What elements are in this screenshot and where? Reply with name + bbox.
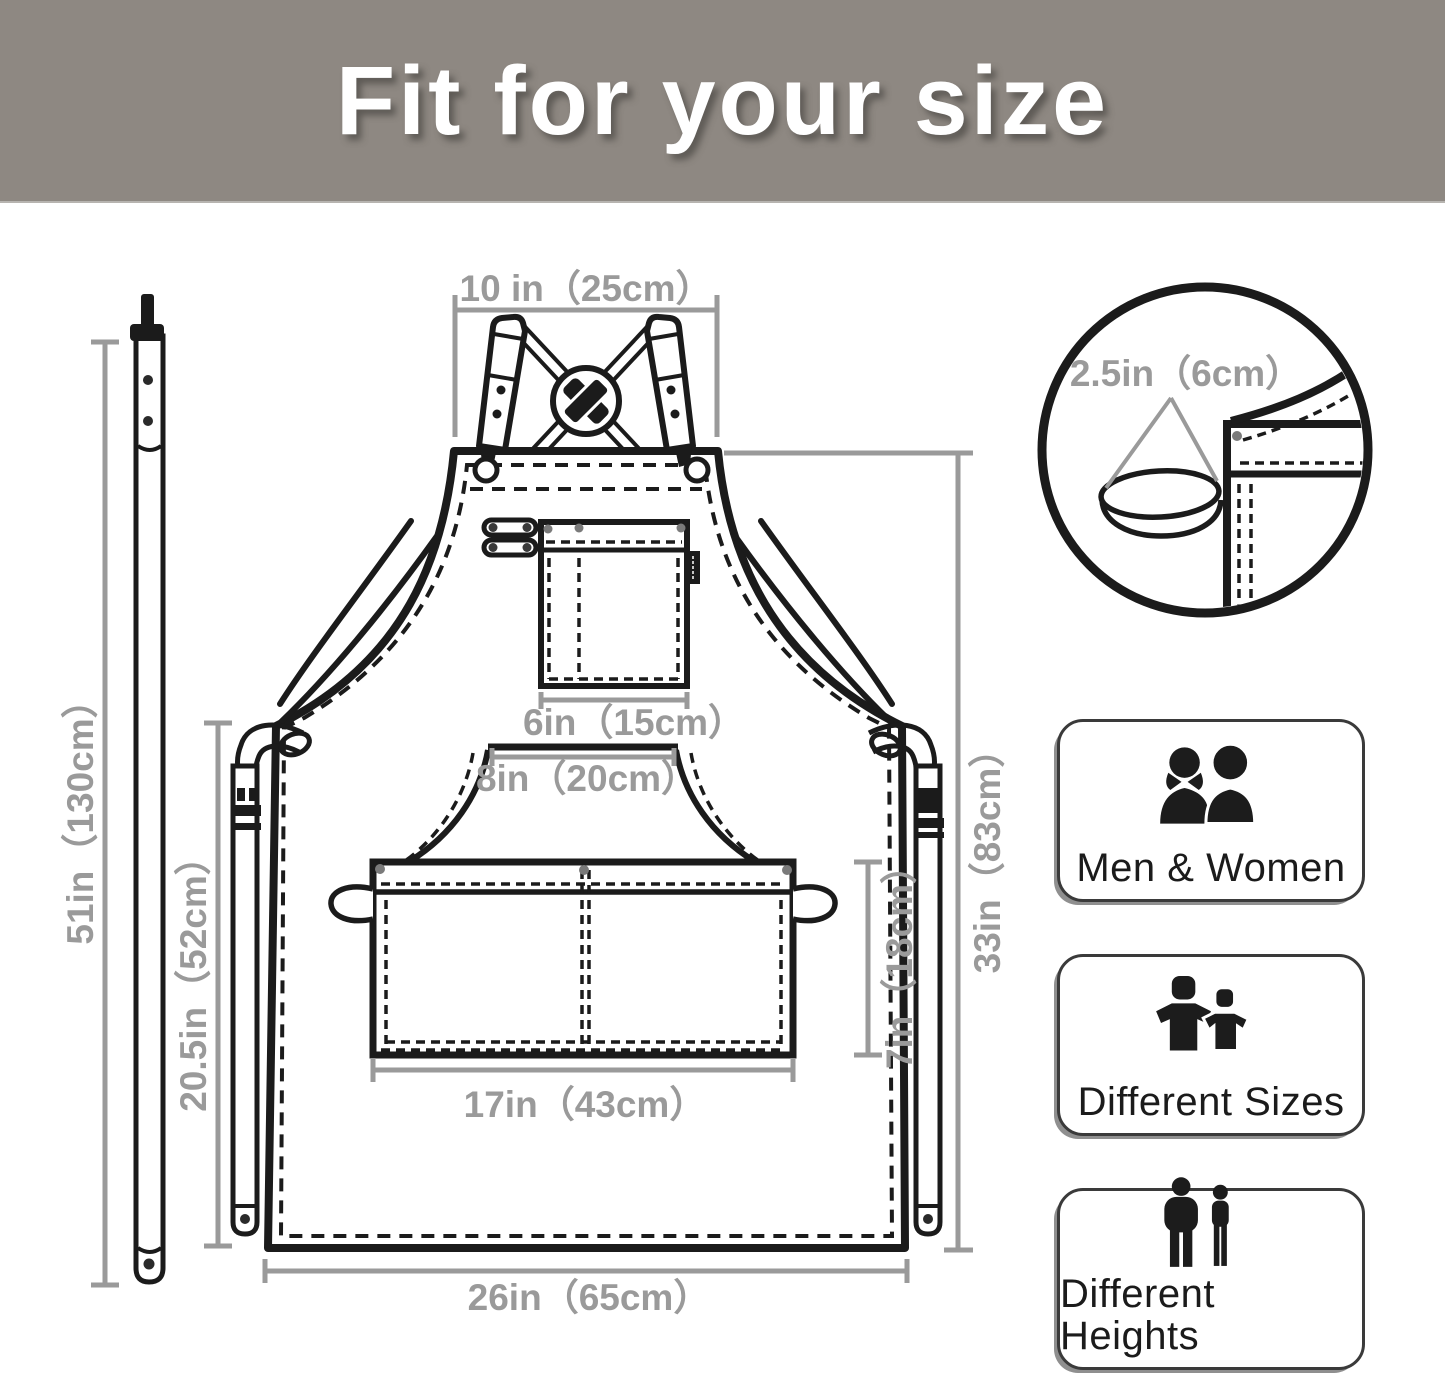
- pen-loops: [484, 520, 536, 555]
- different-sizes-icon: [1152, 957, 1270, 1081]
- dim-side-length: 20.5in（52cm）: [173, 723, 232, 1246]
- neck-strap-rivet: [143, 375, 153, 385]
- cross-back-straps: [479, 317, 693, 452]
- dim-bottom-width: 26in（65cm）: [265, 1259, 907, 1318]
- feature-card-different-sizes: Different Sizes: [1057, 954, 1365, 1136]
- dim-bottom-width-label: 26in（65cm）: [468, 1277, 711, 1318]
- bib-grommet-right: [686, 459, 708, 481]
- bib-grommet-left: [475, 459, 497, 481]
- dim-chest-pocket-label: 6in（15cm）: [523, 702, 745, 743]
- dim-waist-pocket-top-width: 8in（20cm）: [476, 748, 698, 799]
- neck-strap-rivet: [143, 416, 153, 426]
- towel-loop-left: [331, 887, 373, 921]
- neck-strap-tip: [141, 294, 154, 328]
- dim-neck-strap: 51in（130cm）: [60, 342, 119, 1285]
- detail-inset: 2.5in（6cm）: [1042, 287, 1372, 614]
- feature-label: Different Heights: [1060, 1273, 1362, 1357]
- strap-ring-icon: [553, 368, 619, 434]
- different-heights-icon: [1155, 1165, 1267, 1273]
- neck-strap-drawing: [130, 294, 164, 1282]
- dim-waist-pocket-top-label: 8in（20cm）: [476, 758, 698, 799]
- feature-card-men-women: Men & Women: [1057, 719, 1365, 902]
- feature-label: Men & Women: [1076, 847, 1345, 889]
- product-infographic: Fit for your size: [0, 0, 1445, 1374]
- neck-strap-body: [136, 336, 163, 1282]
- dim-side-length-label: 20.5in（52cm）: [173, 838, 214, 1112]
- neck-strap-rivet: [144, 1259, 155, 1270]
- feature-label: Different Sizes: [1078, 1081, 1345, 1123]
- neck-strap-cap: [130, 324, 164, 341]
- men-women-icon: [1150, 722, 1272, 847]
- dim-waist-pocket-height-label: 7in（18cm）: [879, 847, 920, 1069]
- feature-card-different-heights: Different Heights: [1057, 1188, 1365, 1370]
- shoulder-strap-left: [479, 317, 525, 450]
- chest-pocket: [541, 522, 700, 686]
- dim-waist-pocket-width-label: 17in（43cm）: [464, 1084, 707, 1125]
- dim-neck-strap-label: 51in（130cm）: [60, 681, 101, 944]
- towel-loop-right: [793, 887, 835, 921]
- inset-loop-width-label: 2.5in（6cm）: [1070, 353, 1302, 394]
- shoulder-strap-right: [647, 317, 693, 450]
- dim-bib-top-width-label: 10 in（25cm）: [460, 268, 713, 309]
- dim-body-length-label: 33in（83cm）: [967, 731, 1008, 974]
